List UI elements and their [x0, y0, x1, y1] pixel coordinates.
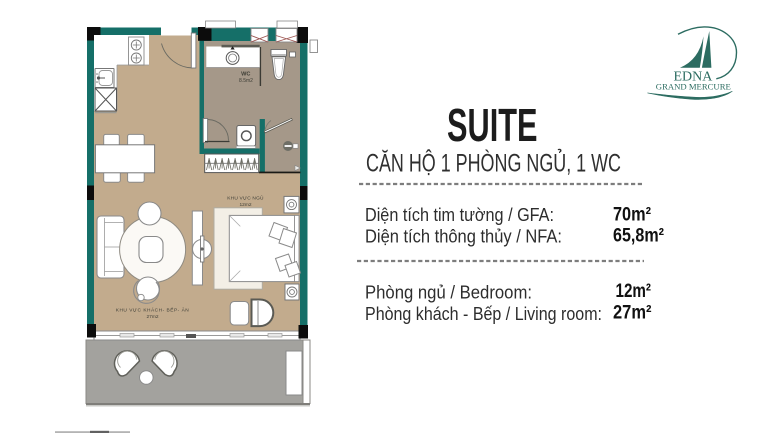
svg-text:WC: WC: [241, 71, 250, 77]
svg-text:65,8m²: 65,8m²: [613, 225, 664, 247]
svg-text:Phòng ngủ / Bedroom:: Phòng ngủ / Bedroom:: [365, 281, 532, 302]
svg-text:Diện tích tim tường / GFA:: Diện tích tim tường / GFA:: [365, 204, 554, 225]
svg-text:27m²: 27m²: [613, 302, 652, 324]
svg-text:8.5m2: 8.5m2: [239, 78, 253, 84]
svg-text:12m2: 12m2: [240, 202, 252, 208]
svg-text:SUITE: SUITE: [447, 99, 538, 151]
svg-text:CĂN HỘ 1 PHÒNG NGỦ, 1 WC: CĂN HỘ 1 PHÒNG NGỦ, 1 WC: [366, 148, 621, 178]
svg-text:KHU VỰC KHÁCH- BẾP- ĂN: KHU VỰC KHÁCH- BẾP- ĂN: [116, 306, 190, 313]
svg-text:Phòng khách - Bếp / Living roo: Phòng khách - Bếp / Living room:: [365, 303, 602, 324]
svg-text:Diện tích thông thủy / NFA:: Diện tích thông thủy / NFA:: [365, 226, 562, 247]
svg-text:GRAND MERCURE: GRAND MERCURE: [656, 82, 731, 92]
svg-text:12m²: 12m²: [616, 280, 652, 302]
svg-text:27m2: 27m2: [147, 314, 159, 320]
svg-text:KHU VỰC NGỦ: KHU VỰC NGỦ: [227, 195, 264, 202]
svg-text:70m²: 70m²: [613, 203, 651, 225]
